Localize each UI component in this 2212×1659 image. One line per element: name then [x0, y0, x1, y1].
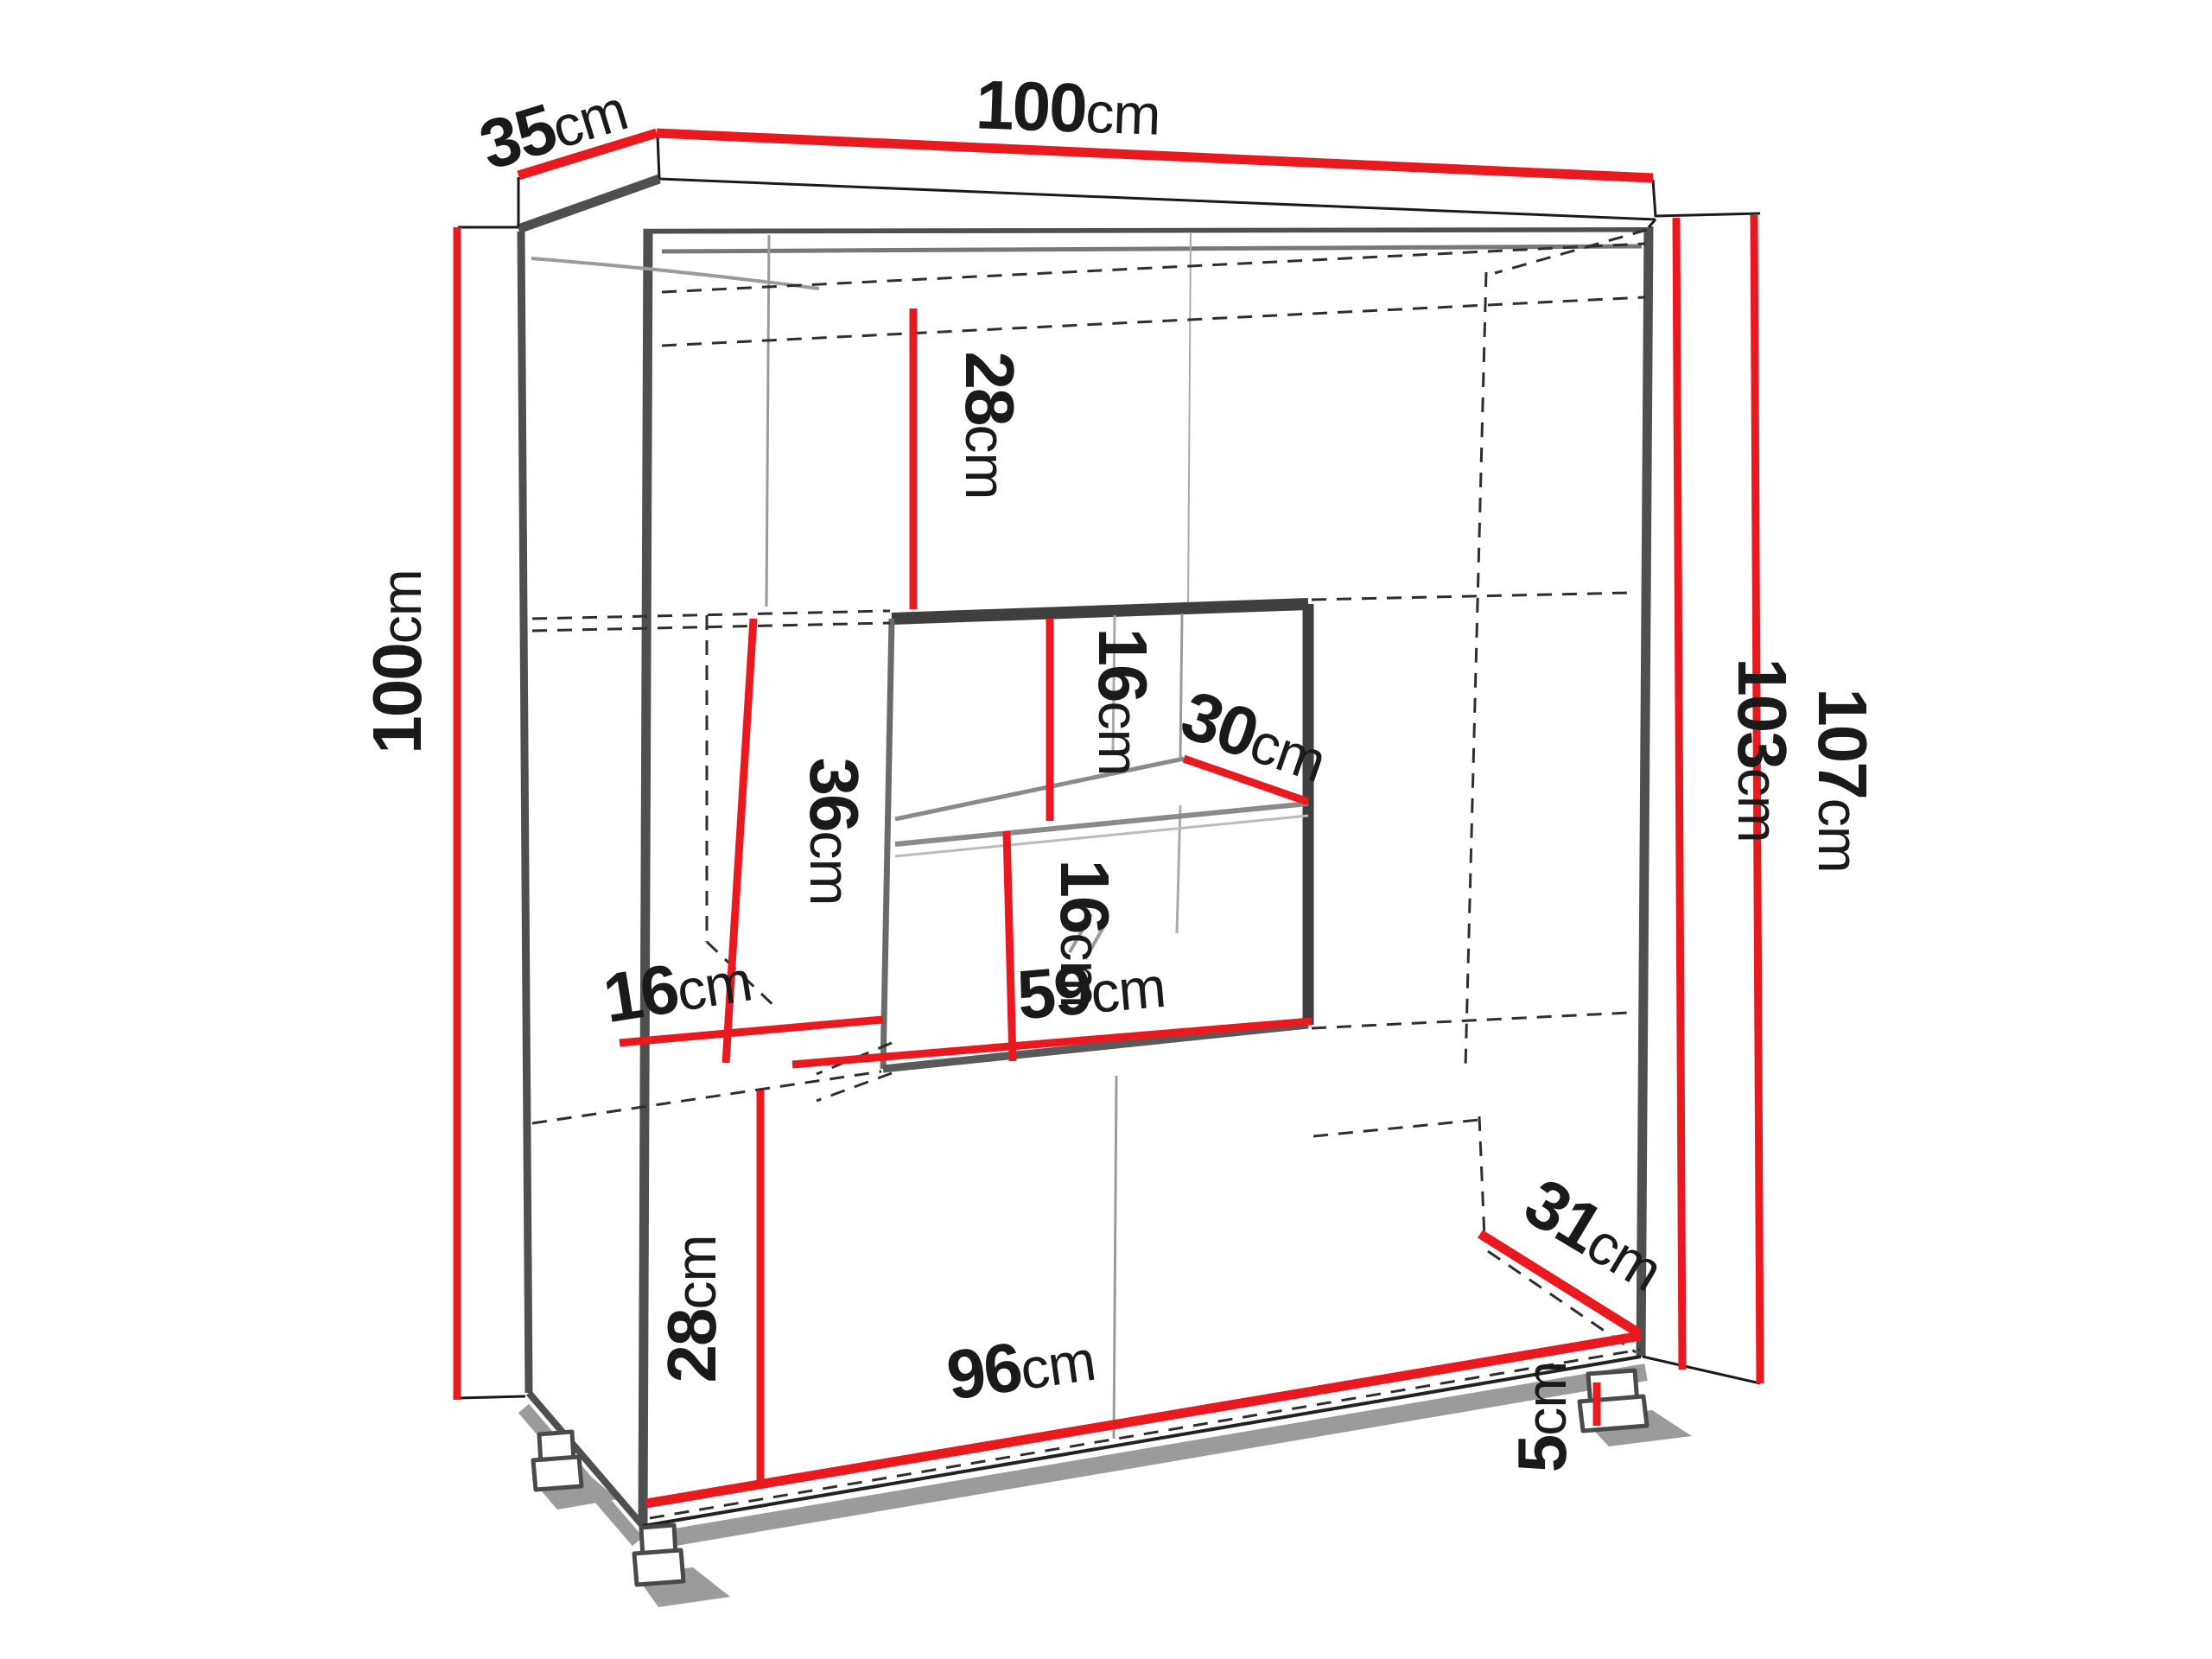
- dim-label-height-inner: 103cm: [1724, 658, 1801, 842]
- back-left-foot: [533, 1457, 582, 1490]
- dim-label-leg-height: 5cm: [1503, 1362, 1580, 1472]
- right-foot: [1580, 1396, 1647, 1431]
- dim-label-height-total: 107cm: [1804, 688, 1881, 872]
- side-panel: [521, 228, 648, 1526]
- dim-label-height-left: 100cm: [359, 569, 435, 753]
- ext-35-right: [658, 136, 659, 178]
- front-left-foot: [634, 1550, 683, 1585]
- diagram-stage: 35cm 100cm 100cm 28cm 16cm 30cm 36cm 16c…: [0, 0, 2212, 1659]
- dim-label-display-upper: 16cm: [1084, 628, 1161, 776]
- front-left-edge: [643, 228, 648, 1526]
- dim-label-display-side: 36cm: [796, 758, 873, 906]
- dim-label-upper-section: 28cm: [951, 352, 1028, 499]
- ext-left-bottom: [458, 1396, 525, 1398]
- side-face: [521, 228, 648, 1526]
- dim-label-lower-section: 28cm: [653, 1236, 730, 1383]
- cabinet-dimension-diagram: 35cm 100cm 100cm 28cm 16cm 30cm 36cm 16c…: [0, 0, 2212, 1659]
